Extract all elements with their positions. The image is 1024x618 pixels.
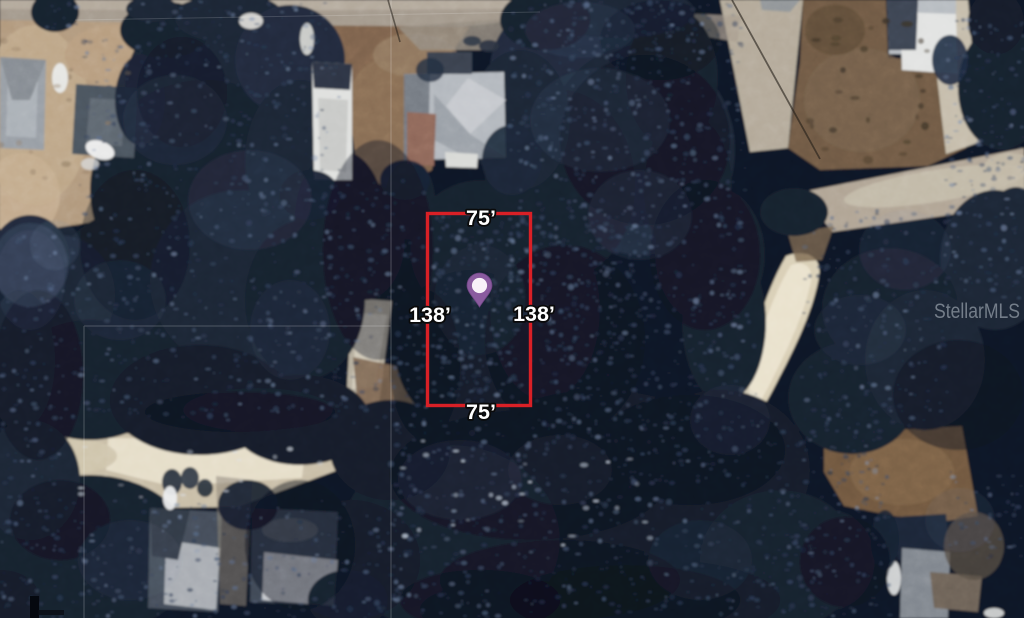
svg-text:75’: 75’ (466, 400, 496, 424)
svg-text:138’: 138’ (513, 302, 555, 326)
svg-text:75’: 75’ (466, 206, 496, 230)
svg-text:138’: 138’ (409, 303, 451, 327)
svg-text:StellarMLS: StellarMLS (934, 300, 1020, 323)
